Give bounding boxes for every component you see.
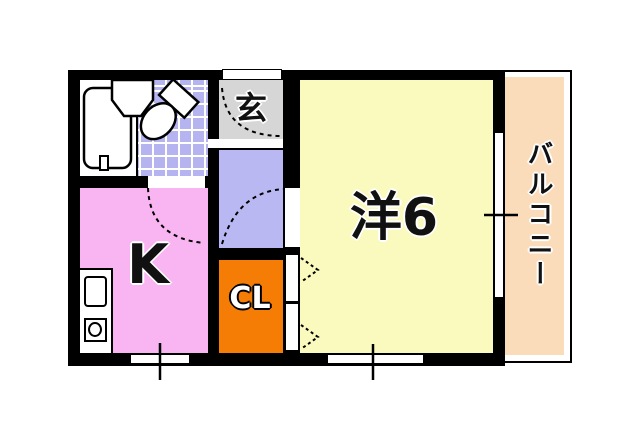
bathroom-door-opening	[148, 176, 205, 188]
wall-right-lower	[493, 297, 505, 366]
closet-label: CL	[229, 284, 270, 314]
genkan-step	[208, 139, 283, 150]
balcony-label: バルコニー	[525, 140, 551, 290]
kitchen-window	[130, 354, 190, 364]
balcony-window	[493, 133, 505, 297]
stove-burner-icon	[88, 322, 102, 337]
hallway-door-opening	[285, 188, 300, 247]
closet-door-panel-bottom	[284, 302, 300, 352]
wall-mid-left-column	[208, 80, 219, 353]
bath-area-floor	[80, 80, 138, 176]
genkan-label: 玄	[235, 92, 267, 124]
western-room-label: 洋6	[350, 192, 438, 244]
room-window	[327, 354, 424, 364]
wall-top	[68, 70, 505, 80]
kitchen-sink	[84, 276, 107, 307]
closet-door-panel-top	[284, 253, 300, 303]
entrance-door	[222, 69, 282, 80]
hallway-floor	[219, 150, 283, 248]
wall-hall-closet	[219, 248, 283, 260]
floorplan-canvas: 玄 K CL 洋6 バルコニー	[0, 0, 640, 429]
wall-right-upper	[493, 70, 505, 133]
kitchen-label: K	[127, 238, 169, 292]
wall-left	[68, 70, 80, 366]
